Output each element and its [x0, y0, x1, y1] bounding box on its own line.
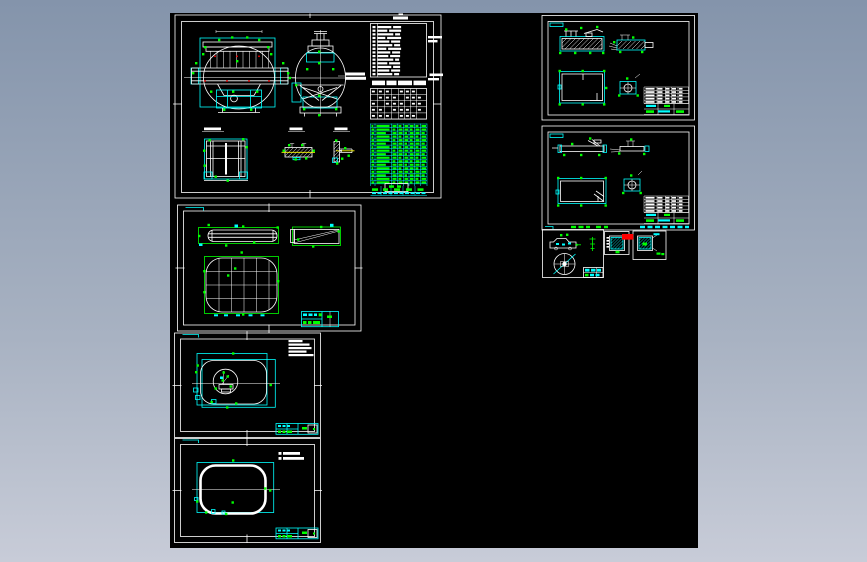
panel-bar-side-view: [199, 228, 279, 244]
spec-table: [371, 89, 427, 120]
drawing-title-text: [372, 81, 426, 86]
red-highlight-mark: [622, 234, 633, 240]
end-elevation-view: [292, 30, 366, 117]
title-block: [276, 528, 318, 539]
red-dots: [204, 55, 270, 82]
shell-outline-view: [192, 463, 280, 515]
cart-part-view: [550, 239, 581, 251]
green-symbol: [590, 237, 596, 251]
table-text-marks: [199, 105, 689, 532]
strip-top-view: [552, 140, 607, 153]
bracket-end-view: [609, 35, 653, 50]
side-elevation-view: [184, 30, 296, 113]
section-view-labels: [202, 128, 350, 132]
sheet-border: [542, 126, 695, 230]
sheet-shell-fitting[interactable]: [173, 332, 323, 439]
sheet-small-pad-right[interactable]: [633, 231, 666, 260]
sheet-bracket-details-upper[interactable]: [542, 16, 695, 121]
panel-plan-view: [204, 256, 279, 314]
bracket-pin-view: [620, 74, 640, 94]
sheet-bracket-details-lower[interactable]: [542, 126, 695, 230]
section-view-b: [282, 144, 316, 160]
title-block: [276, 424, 318, 435]
dimension-marks: [192, 26, 684, 538]
notes-text: [289, 340, 314, 356]
shell-view: [192, 354, 280, 408]
strip-end-view: [610, 141, 649, 152]
cad-model-space[interactable]: [170, 13, 698, 548]
bracket-plate-view: [558, 72, 605, 104]
parts-list-table: [371, 124, 428, 196]
technical-notes-table: [371, 13, 444, 80]
sheet-grid-panel[interactable]: [176, 204, 363, 334]
section-view-c: [333, 142, 355, 163]
pin-view: [624, 171, 642, 191]
panel-bar-end-view: [291, 227, 341, 246]
bracket-top-view: [560, 30, 604, 52]
cad-canvas[interactable]: [170, 13, 698, 548]
section-view-a: [204, 139, 248, 181]
wheel-view: [554, 254, 576, 275]
desktop-background: [0, 0, 867, 562]
plate-view: [556, 179, 606, 204]
sheet-shell-outline[interactable]: [173, 437, 323, 543]
pad-view: [638, 235, 658, 251]
sheet-assembly-drawing[interactable]: [173, 13, 443, 198]
notes-text: [279, 452, 305, 460]
